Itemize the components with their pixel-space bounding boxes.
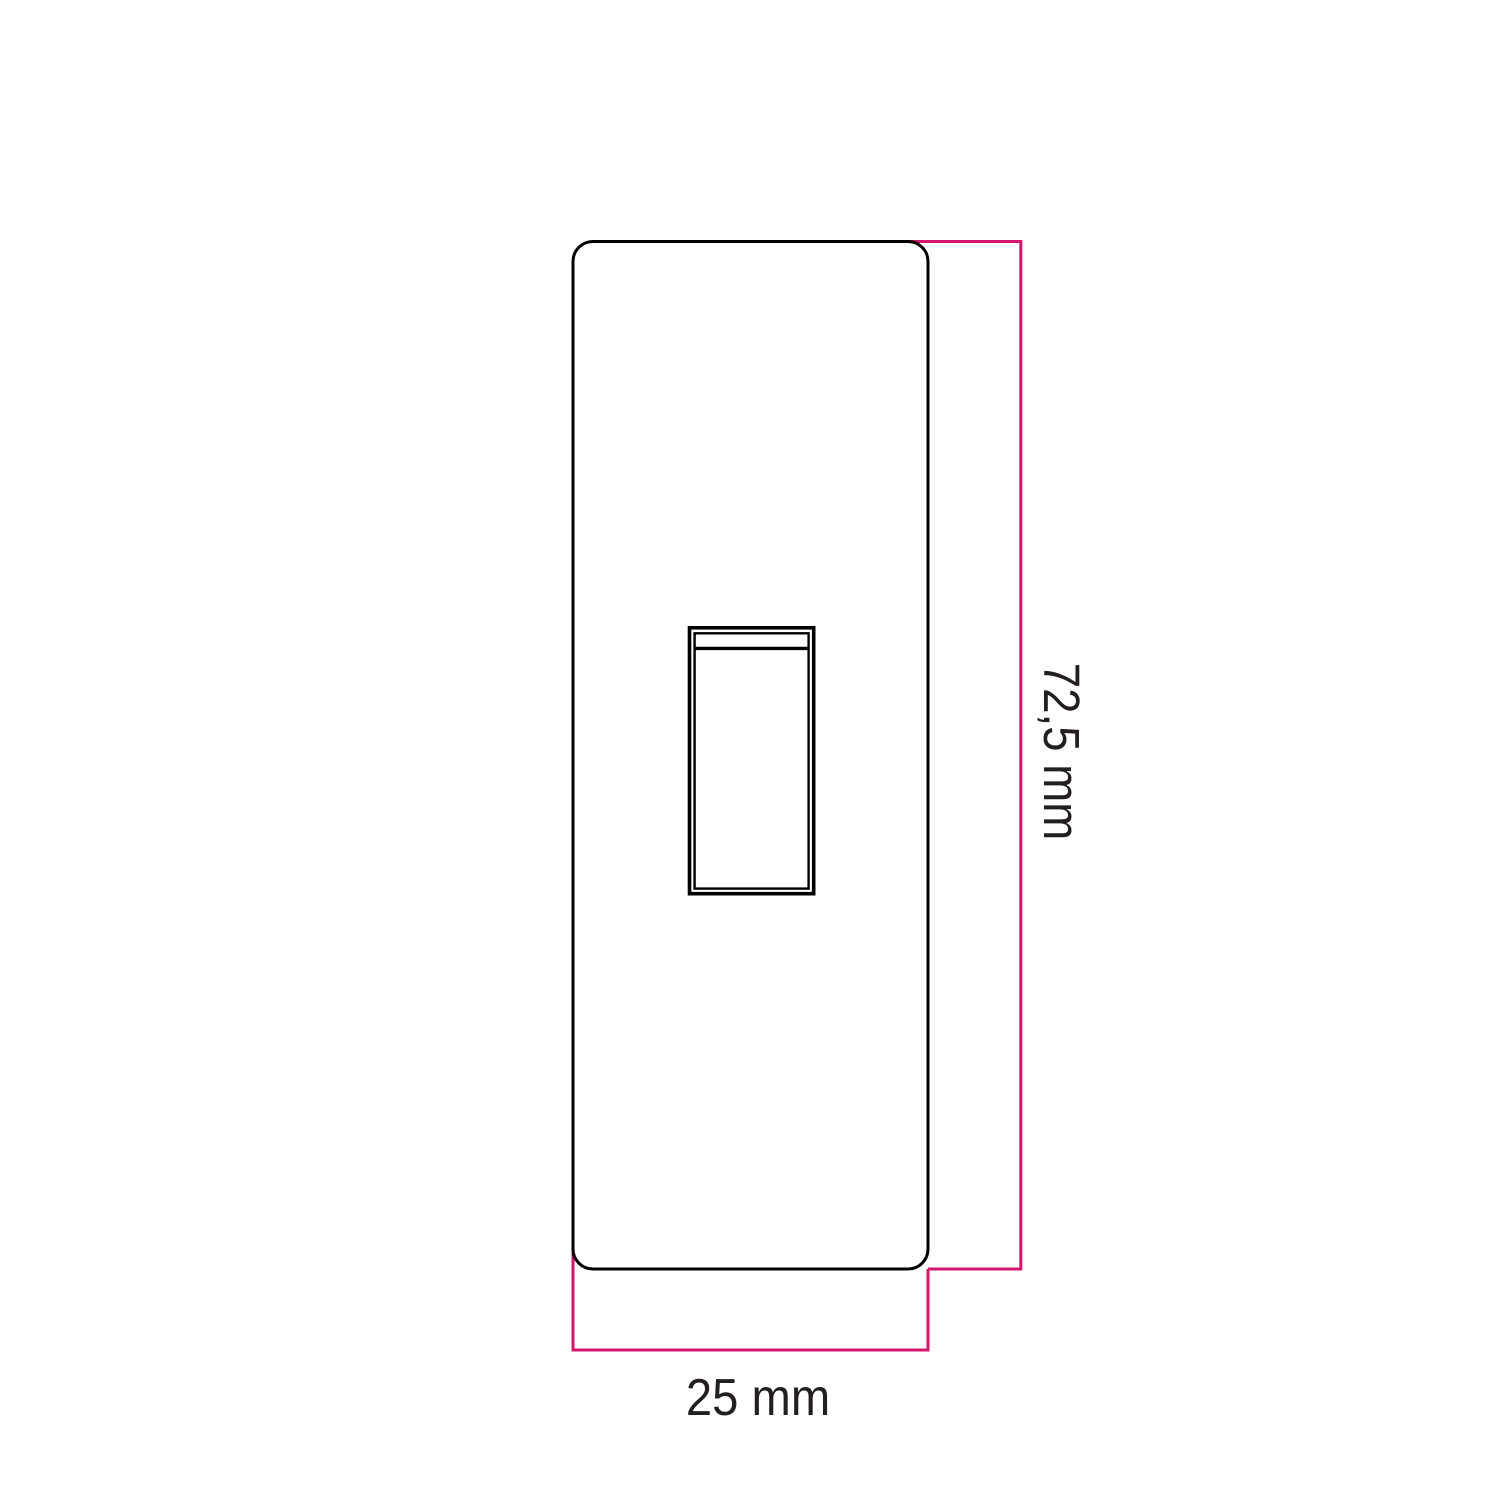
svg-text:25 mm: 25 mm	[686, 1369, 830, 1426]
svg-text:72,5 mm: 72,5 mm	[1032, 663, 1089, 840]
